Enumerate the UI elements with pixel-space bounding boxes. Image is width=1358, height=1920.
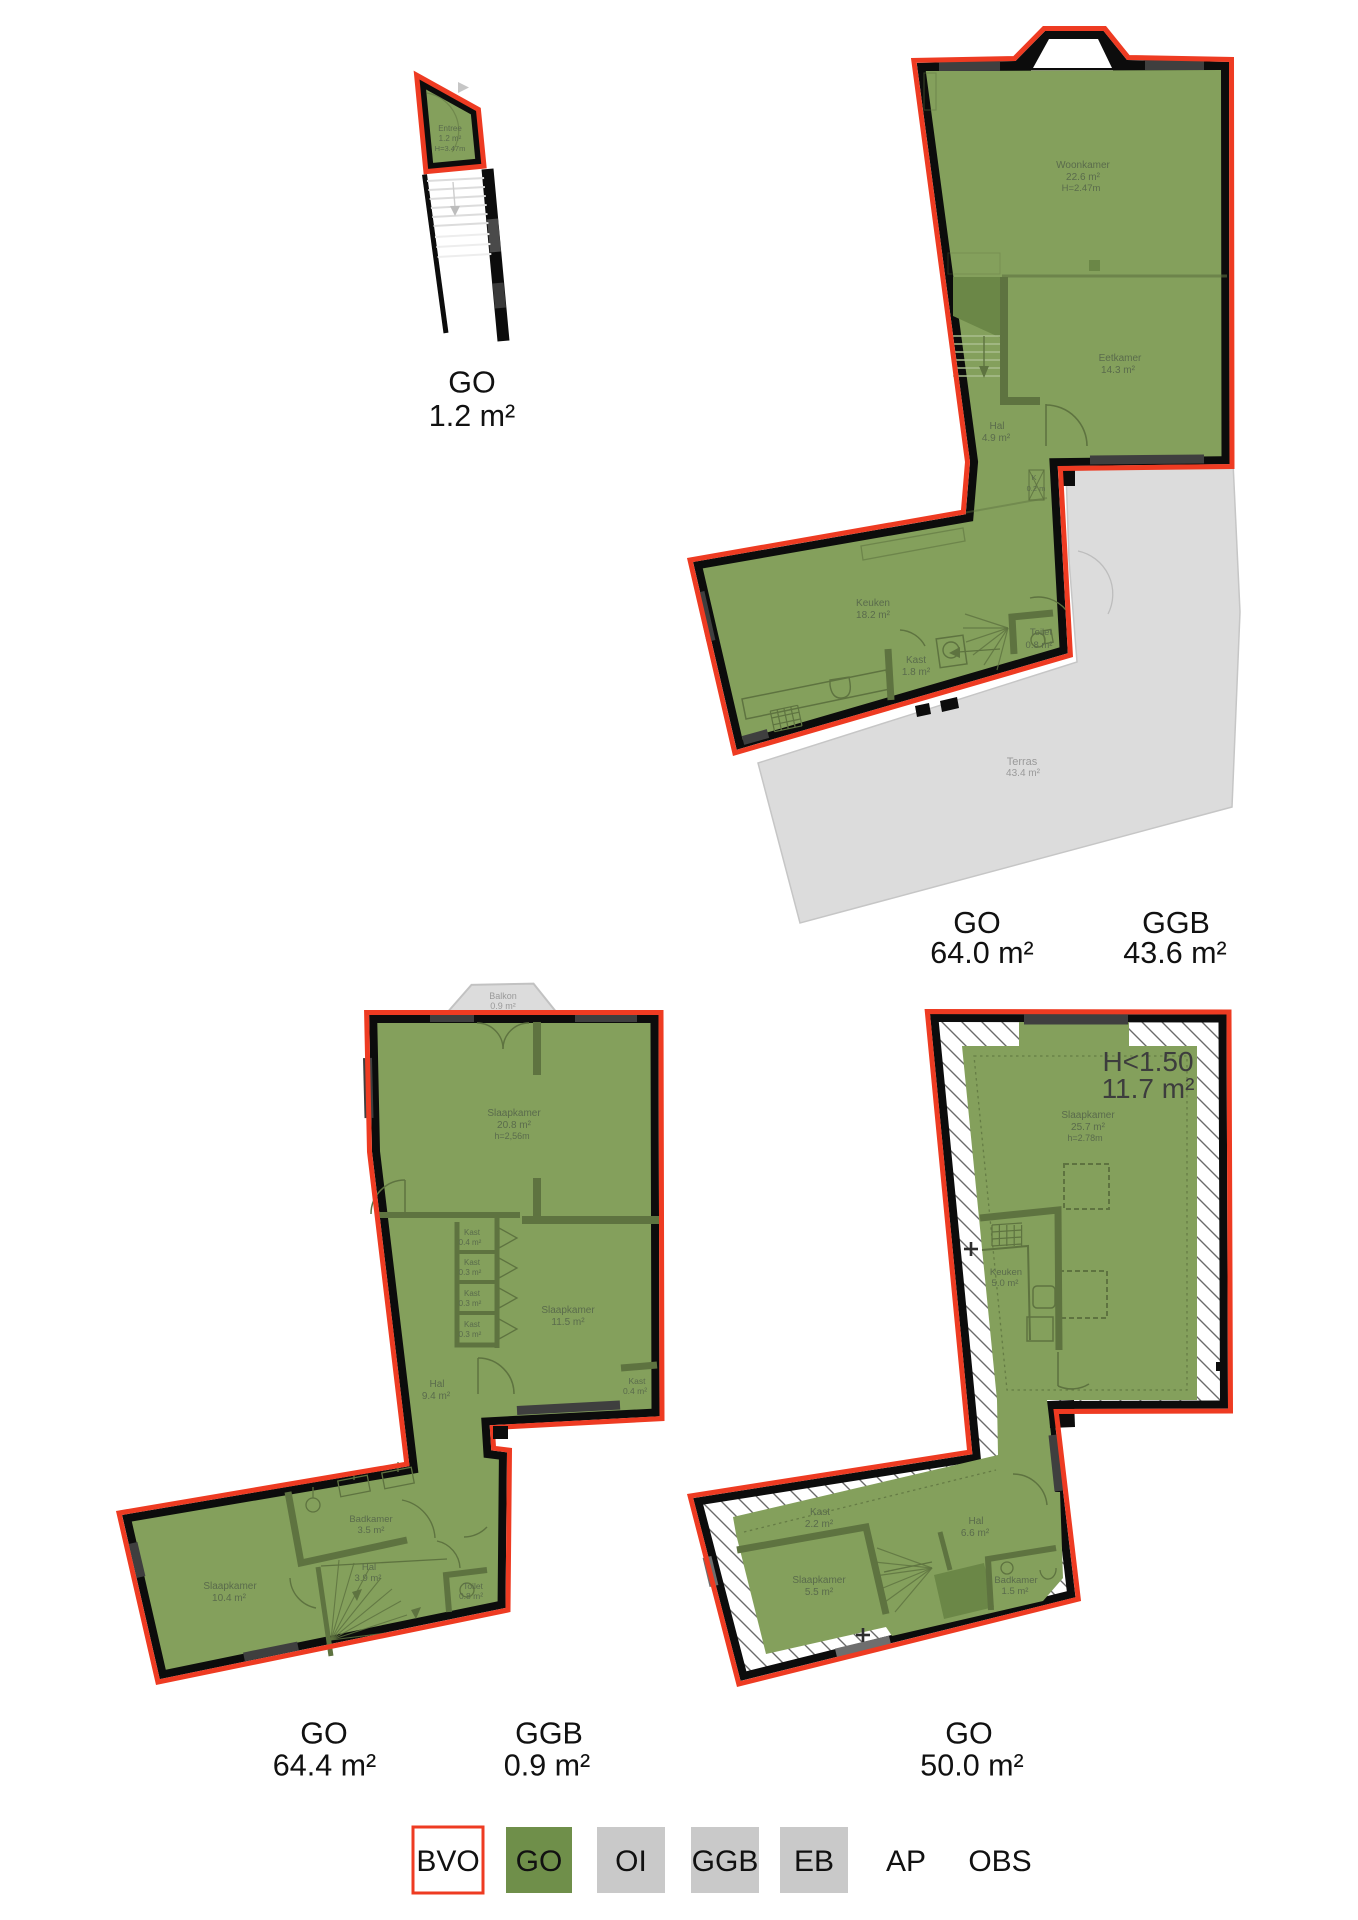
svg-text:18.2 m²: 18.2 m² <box>856 610 891 621</box>
svg-text:Slaapkamer: Slaapkamer <box>1061 1110 1115 1121</box>
svg-text:64.4 m²: 64.4 m² <box>273 1749 376 1783</box>
svg-text:20.8 m²: 20.8 m² <box>497 1120 532 1131</box>
svg-text:0.4 m²: 0.4 m² <box>459 1238 482 1247</box>
svg-text:0.8 m²: 0.8 m² <box>1026 640 1053 651</box>
svg-text:0.8 m²: 0.8 m² <box>459 1591 483 1601</box>
svg-text:2.2 m²: 2.2 m² <box>805 1519 834 1530</box>
svg-text:GGB: GGB <box>692 1845 759 1878</box>
svg-text:GGB: GGB <box>515 1717 583 1751</box>
svg-text:GO: GO <box>945 1717 992 1751</box>
svg-text:1.2 m²: 1.2 m² <box>439 134 462 143</box>
svg-text:43.4 m²: 43.4 m² <box>1006 768 1041 779</box>
svg-text:Kast: Kast <box>464 1320 481 1329</box>
svg-text:1.5 m²: 1.5 m² <box>1002 1586 1029 1597</box>
svg-text:5.0 m²: 5.0 m² <box>992 1278 1019 1289</box>
svg-text:Keuken: Keuken <box>990 1267 1022 1278</box>
svg-text:6.6 m²: 6.6 m² <box>961 1528 990 1539</box>
svg-text:4.9 m²: 4.9 m² <box>982 433 1011 444</box>
svg-text:Hal: Hal <box>429 1379 444 1390</box>
svg-text:9.4 m²: 9.4 m² <box>422 1391 451 1402</box>
svg-text:OBS: OBS <box>968 1845 1031 1878</box>
svg-text:h=2,56m: h=2,56m <box>494 1131 529 1141</box>
svg-text:Toilet: Toilet <box>463 1581 483 1591</box>
svg-text:Entree: Entree <box>438 124 462 133</box>
svg-text:50.0 m²: 50.0 m² <box>920 1749 1023 1783</box>
svg-text:GO: GO <box>516 1845 563 1878</box>
svg-text:Kast: Kast <box>464 1258 481 1267</box>
svg-text:Terras: Terras <box>1007 756 1038 768</box>
svg-text:Slaapkamer: Slaapkamer <box>792 1575 846 1586</box>
svg-text:h=2.78m: h=2.78m <box>1067 1133 1102 1143</box>
svg-text:H=3.47m: H=3.47m <box>435 144 466 153</box>
svg-text:0.9 m²: 0.9 m² <box>490 1001 516 1011</box>
svg-text:GO: GO <box>953 906 1000 940</box>
svg-text:10.4 m²: 10.4 m² <box>212 1593 247 1604</box>
svg-text:0.3 m²: 0.3 m² <box>459 1299 482 1308</box>
svg-text:22.6 m²: 22.6 m² <box>1066 172 1101 183</box>
svg-text:0.3 m²: 0.3 m² <box>459 1330 482 1339</box>
svg-text:Hal: Hal <box>989 421 1004 432</box>
svg-text:0.9 m²: 0.9 m² <box>504 1749 590 1783</box>
svg-text:3.5 m²: 3.5 m² <box>358 1525 385 1536</box>
svg-text:Toilet: Toilet <box>1030 627 1053 638</box>
svg-text:Slaapkamer: Slaapkamer <box>203 1581 257 1592</box>
svg-text:25.7 m²: 25.7 m² <box>1071 1122 1106 1133</box>
svg-text:Eetkamer: Eetkamer <box>1099 353 1142 364</box>
svg-text:14.3 m²: 14.3 m² <box>1101 365 1136 376</box>
svg-text:11.5 m²: 11.5 m² <box>551 1317 585 1328</box>
svg-text:64.0 m²: 64.0 m² <box>930 936 1033 970</box>
svg-text:3.9 m²: 3.9 m² <box>355 1573 382 1584</box>
svg-text:Keuken: Keuken <box>856 598 890 609</box>
svg-text:5.5 m²: 5.5 m² <box>805 1587 834 1598</box>
svg-text:0.3 m²: 0.3 m² <box>459 1268 482 1277</box>
svg-text:BVO: BVO <box>416 1845 479 1878</box>
svg-text:43.6 m²: 43.6 m² <box>1123 936 1226 970</box>
svg-text:Badkamer: Badkamer <box>994 1575 1037 1586</box>
svg-text:Woonkamer: Woonkamer <box>1056 160 1110 171</box>
svg-text:0.2 m: 0.2 m <box>1027 484 1046 493</box>
svg-text:K: K <box>1031 473 1036 482</box>
svg-text:GGB: GGB <box>1142 906 1210 940</box>
svg-text:0.4 m²: 0.4 m² <box>623 1386 647 1396</box>
svg-text:H=2.47m: H=2.47m <box>1062 183 1101 194</box>
svg-text:Badkamer: Badkamer <box>349 1514 392 1525</box>
svg-text:Kast: Kast <box>810 1507 830 1518</box>
svg-text:GO: GO <box>448 366 495 400</box>
svg-text:Kast: Kast <box>906 655 926 666</box>
svg-text:1.2 m²: 1.2 m² <box>429 399 515 433</box>
svg-text:Kast: Kast <box>464 1289 481 1298</box>
svg-text:Balkon: Balkon <box>489 991 517 1001</box>
svg-text:Hal: Hal <box>362 1562 376 1573</box>
svg-text:GO: GO <box>300 1717 347 1751</box>
svg-text:AP: AP <box>886 1845 926 1878</box>
svg-text:Slaapkamer: Slaapkamer <box>541 1305 595 1316</box>
svg-text:Kast: Kast <box>628 1376 646 1386</box>
svg-text:1.8 m²: 1.8 m² <box>902 667 931 678</box>
svg-text:Hal: Hal <box>968 1516 983 1527</box>
svg-text:Kast: Kast <box>464 1228 481 1237</box>
svg-text:11.7 m²: 11.7 m² <box>1102 1073 1195 1104</box>
svg-text:EB: EB <box>794 1845 834 1878</box>
svg-text:OI: OI <box>615 1845 647 1878</box>
svg-text:Slaapkamer: Slaapkamer <box>487 1108 541 1119</box>
